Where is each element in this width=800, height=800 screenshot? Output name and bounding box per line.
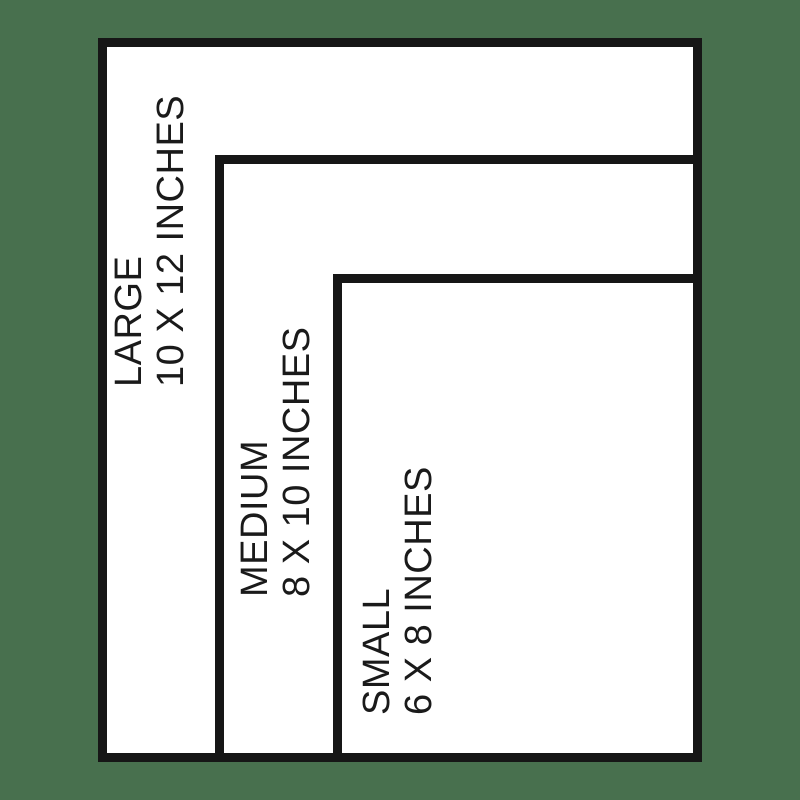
size-name-large: LARGE <box>108 95 150 387</box>
size-dimensions-medium: 8 X 10 INCHES <box>276 327 318 598</box>
size-label-medium: MEDIUM 8 X 10 INCHES <box>234 327 318 598</box>
size-chart-canvas: LARGE 10 X 12 INCHES MEDIUM 8 X 10 INCHE… <box>0 0 800 800</box>
size-label-small: SMALL 6 X 8 INCHES <box>356 466 440 715</box>
size-dimensions-large: 10 X 12 INCHES <box>150 95 192 387</box>
size-name-small: SMALL <box>356 466 398 715</box>
size-name-medium: MEDIUM <box>234 327 276 598</box>
size-dimensions-small: 6 X 8 INCHES <box>398 466 440 715</box>
size-label-large: LARGE 10 X 12 INCHES <box>108 95 192 387</box>
